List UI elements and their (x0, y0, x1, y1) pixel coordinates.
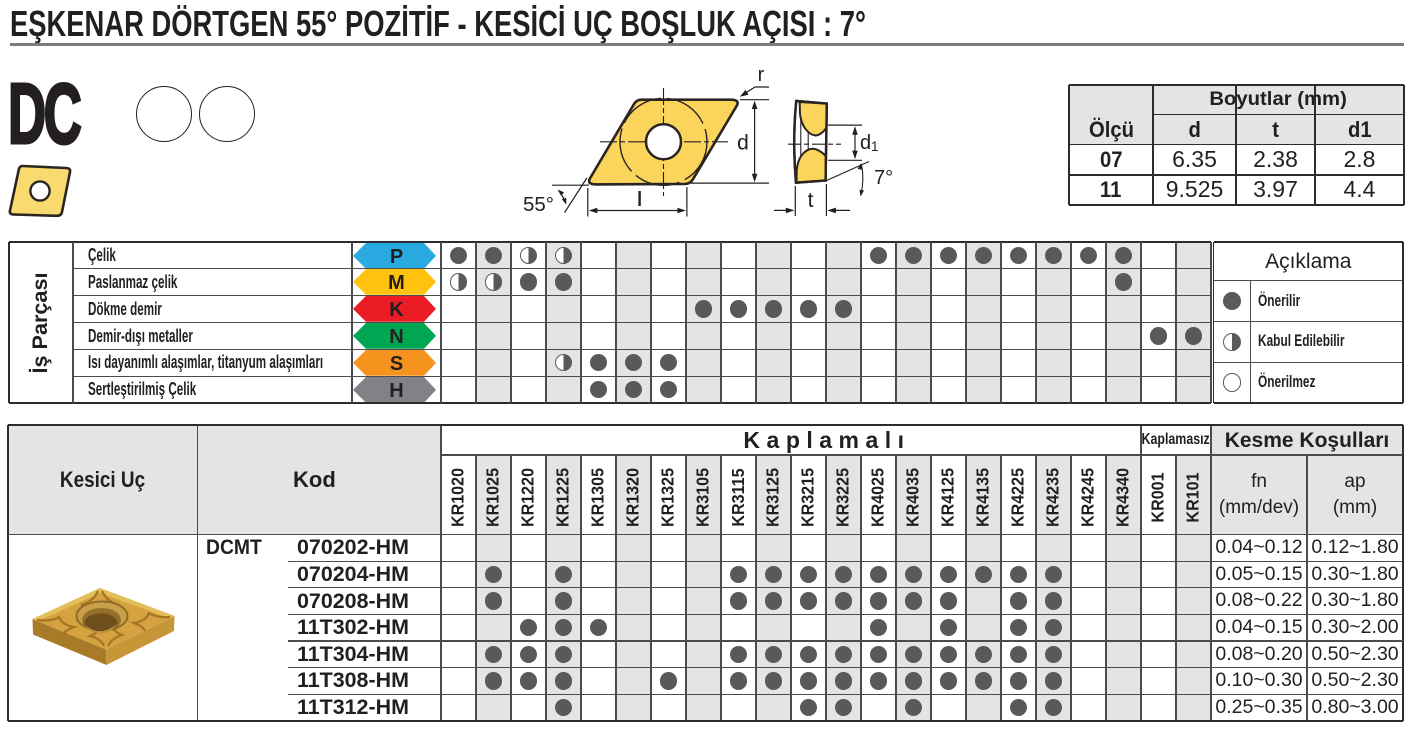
svg-text:d: d (737, 132, 749, 155)
svg-text:K: K (389, 299, 404, 321)
svg-text:S: S (390, 353, 403, 375)
svg-text:DC: DC (8, 66, 82, 158)
svg-text:H: H (389, 380, 403, 402)
svg-text:r: r (758, 64, 765, 86)
svg-text:d: d (860, 132, 871, 154)
svg-text:M: M (388, 272, 405, 294)
svg-text:7°: 7° (874, 167, 893, 189)
svg-text:1: 1 (871, 139, 879, 154)
svg-text:55°: 55° (523, 193, 554, 216)
svg-text:P: P (390, 246, 403, 268)
svg-text:t: t (808, 189, 814, 212)
svg-text:N: N (389, 326, 403, 348)
